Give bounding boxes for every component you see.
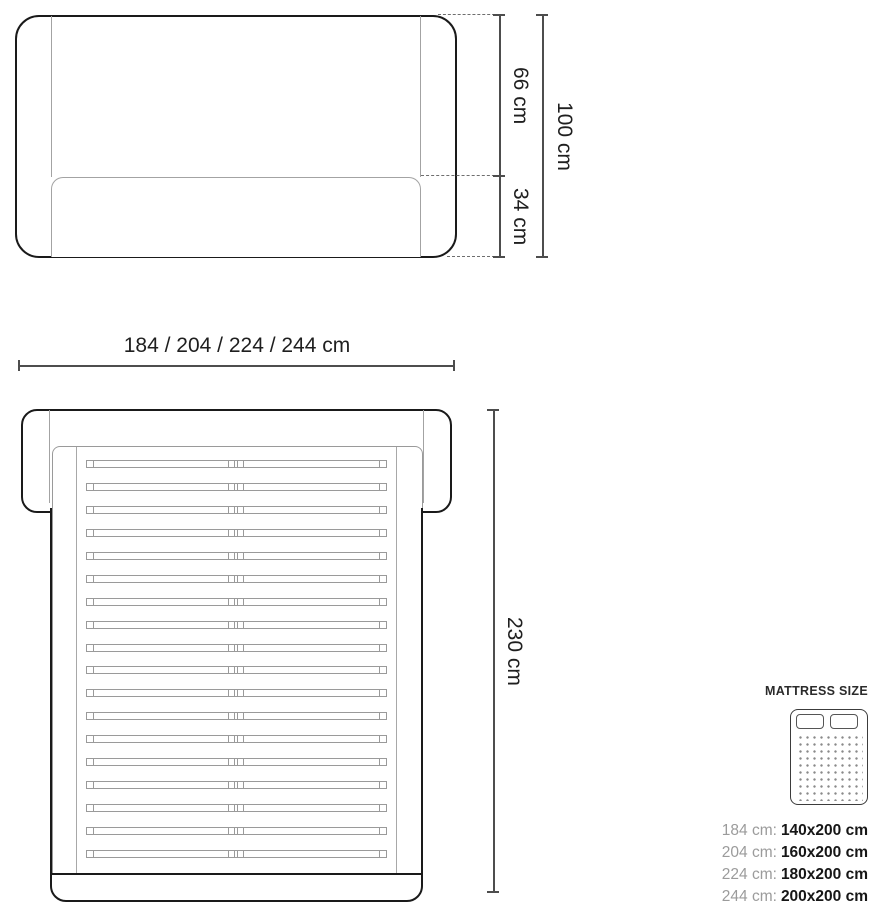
extension-dashed-line-top bbox=[438, 14, 500, 15]
slat-end-cap bbox=[86, 735, 94, 743]
slat-end-cap bbox=[379, 666, 387, 674]
slat-end-cap bbox=[379, 781, 387, 789]
slat-end-cap bbox=[237, 666, 244, 674]
extension-dashed-line-middle bbox=[421, 175, 500, 176]
dimension-tick bbox=[453, 360, 455, 371]
slat-end-cap bbox=[237, 598, 244, 606]
slat-row bbox=[86, 598, 387, 606]
slat-row bbox=[86, 827, 387, 835]
slat-end-cap bbox=[237, 712, 244, 720]
slat-end-cap bbox=[237, 552, 244, 560]
top-view-left-side-rail bbox=[50, 508, 52, 873]
slat-end-cap bbox=[228, 621, 235, 629]
slat-end-cap bbox=[228, 552, 235, 560]
total-height-label: 100 cm bbox=[547, 15, 581, 258]
slat-end-cap bbox=[86, 460, 94, 468]
slat-end-cap bbox=[237, 735, 244, 743]
slat-end-cap bbox=[379, 598, 387, 606]
slat-end-cap bbox=[379, 529, 387, 537]
slat-end-cap bbox=[228, 483, 235, 491]
slat-end-cap bbox=[86, 689, 94, 697]
slat-end-cap bbox=[228, 529, 235, 537]
slat-end-cap bbox=[228, 712, 235, 720]
slat-end-cap bbox=[237, 804, 244, 812]
frame-width-value: 184 cm: bbox=[722, 822, 777, 839]
slat-end-cap bbox=[86, 552, 94, 560]
top-view-inner-wall-left bbox=[76, 447, 77, 873]
slat-end-cap bbox=[237, 483, 244, 491]
slat-end-cap bbox=[379, 644, 387, 652]
slat-end-cap bbox=[379, 758, 387, 766]
slat-end-cap bbox=[228, 850, 235, 858]
slat-row bbox=[86, 758, 387, 766]
mattress-size-row: 244 cm:200x200 cm bbox=[700, 886, 868, 908]
slat-end-cap bbox=[228, 506, 235, 514]
slat-end-cap bbox=[237, 460, 244, 468]
slat-end-cap bbox=[86, 506, 94, 514]
slat-end-cap bbox=[237, 850, 244, 858]
top-view-left-wing-seam bbox=[49, 410, 50, 503]
frame-width-value: 244 cm: bbox=[722, 888, 777, 905]
slat-end-cap bbox=[237, 781, 244, 789]
slat-end-cap bbox=[86, 483, 94, 491]
slat-end-cap bbox=[379, 712, 387, 720]
slat-end-cap bbox=[86, 598, 94, 606]
slat-row bbox=[86, 850, 387, 858]
slat-end-cap bbox=[379, 621, 387, 629]
slat-end-cap bbox=[228, 575, 235, 583]
slat-row bbox=[86, 460, 387, 468]
slat-row bbox=[86, 804, 387, 812]
slat-row bbox=[86, 529, 387, 537]
mattress-size-value: 140x200 cm bbox=[781, 822, 868, 839]
slat-end-cap bbox=[228, 689, 235, 697]
base-height-label: 34 cm bbox=[504, 176, 536, 258]
front-view-right-seam-line bbox=[420, 16, 421, 177]
slat-end-cap bbox=[237, 644, 244, 652]
mattress-tufting-dots bbox=[795, 732, 863, 801]
slat-end-cap bbox=[379, 689, 387, 697]
slat-row bbox=[86, 483, 387, 491]
width-options-label: 184 / 204 / 224 / 244 cm bbox=[0, 334, 474, 358]
frame-width-value: 224 cm: bbox=[722, 866, 777, 883]
slat-end-cap bbox=[86, 850, 94, 858]
slat-end-cap bbox=[86, 758, 94, 766]
top-view-right-side-rail bbox=[421, 508, 423, 873]
top-view-inner-wall-right bbox=[396, 447, 397, 873]
top-view-right-wing-seam bbox=[423, 410, 424, 503]
slat-end-cap bbox=[86, 666, 94, 674]
slat-end-cap bbox=[379, 483, 387, 491]
dimension-line-230 bbox=[493, 410, 495, 893]
mattress-size-row: 184 cm:140x200 cm bbox=[700, 820, 868, 842]
slat-end-cap bbox=[237, 529, 244, 537]
slat-end-cap bbox=[86, 621, 94, 629]
slat-end-cap bbox=[237, 506, 244, 514]
slat-end-cap bbox=[379, 827, 387, 835]
slat-end-cap bbox=[379, 575, 387, 583]
frame-width-value: 204 cm: bbox=[722, 844, 777, 861]
front-view-base-panel bbox=[51, 177, 421, 257]
slat-end-cap bbox=[379, 850, 387, 858]
slat-end-cap bbox=[228, 804, 235, 812]
slat-end-cap bbox=[86, 575, 94, 583]
bed-dimension-diagram: 66 cm 34 cm 100 cm 184 / 204 / 224 / 244… bbox=[0, 0, 880, 920]
slat-end-cap bbox=[228, 781, 235, 789]
slat-end-cap bbox=[237, 827, 244, 835]
mattress-size-row: 204 cm:160x200 cm bbox=[700, 842, 868, 864]
slat-end-cap bbox=[379, 804, 387, 812]
slat-end-cap bbox=[86, 827, 94, 835]
slat-end-cap bbox=[228, 758, 235, 766]
mattress-size-value: 160x200 cm bbox=[781, 844, 868, 861]
slat-end-cap bbox=[237, 758, 244, 766]
dimension-tick bbox=[18, 360, 20, 371]
slat-end-cap bbox=[228, 644, 235, 652]
slat-end-cap bbox=[379, 506, 387, 514]
slat-row bbox=[86, 689, 387, 697]
dimension-line-66-34 bbox=[499, 15, 501, 258]
slat-end-cap bbox=[228, 827, 235, 835]
slat-end-cap bbox=[237, 575, 244, 583]
mattress-size-row: 224 cm:180x200 cm bbox=[700, 864, 868, 886]
pillow-right-icon bbox=[830, 714, 858, 729]
pillow-left-icon bbox=[796, 714, 824, 729]
slat-row bbox=[86, 666, 387, 674]
slat-end-cap bbox=[379, 552, 387, 560]
headboard-height-label: 66 cm bbox=[504, 15, 536, 176]
slat-end-cap bbox=[237, 689, 244, 697]
slat-end-cap bbox=[86, 529, 94, 537]
mattress-size-value: 200x200 cm bbox=[781, 888, 868, 905]
slat-end-cap bbox=[379, 460, 387, 468]
slat-row bbox=[86, 735, 387, 743]
slat-end-cap bbox=[228, 598, 235, 606]
top-view-footer-rail bbox=[50, 873, 423, 902]
mattress-size-title: MATTRESS SIZE bbox=[740, 684, 868, 698]
mattress-size-list: 184 cm:140x200 cm204 cm:160x200 cm224 cm… bbox=[700, 820, 868, 908]
slat-row bbox=[86, 506, 387, 514]
slat-end-cap bbox=[237, 621, 244, 629]
mattress-size-value: 180x200 cm bbox=[781, 866, 868, 883]
slat-area bbox=[86, 460, 387, 858]
slat-row bbox=[86, 621, 387, 629]
slat-end-cap bbox=[379, 735, 387, 743]
mattress-icon bbox=[790, 709, 868, 805]
slat-row bbox=[86, 712, 387, 720]
front-view-left-seam-line bbox=[51, 16, 52, 177]
slat-row bbox=[86, 644, 387, 652]
slat-end-cap bbox=[86, 644, 94, 652]
slat-end-cap bbox=[228, 735, 235, 743]
dimension-line-100 bbox=[542, 15, 544, 258]
slat-end-cap bbox=[228, 666, 235, 674]
slat-end-cap bbox=[228, 460, 235, 468]
slat-end-cap bbox=[86, 804, 94, 812]
length-label: 230 cm bbox=[497, 410, 531, 893]
slat-row bbox=[86, 781, 387, 789]
slat-end-cap bbox=[86, 781, 94, 789]
slat-row bbox=[86, 575, 387, 583]
slat-end-cap bbox=[86, 712, 94, 720]
width-dimension-line bbox=[18, 365, 455, 367]
slat-row bbox=[86, 552, 387, 560]
